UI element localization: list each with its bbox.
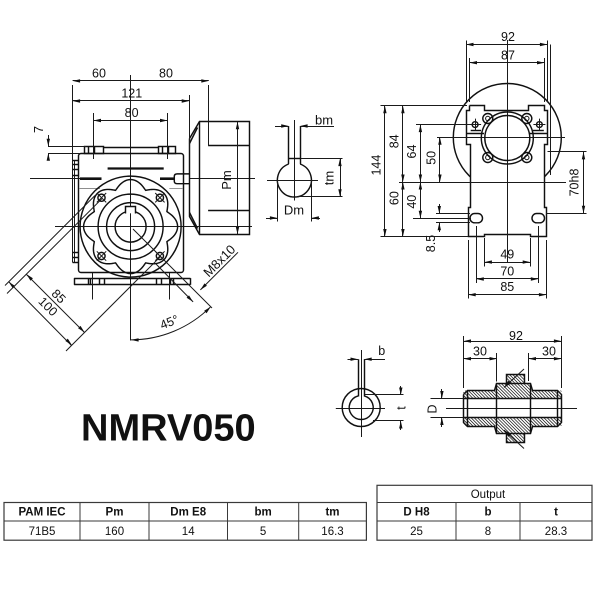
svg-text:Dm: Dm [284, 203, 304, 218]
svg-text:tm: tm [325, 507, 339, 519]
svg-text:80: 80 [125, 106, 139, 120]
svg-text:5: 5 [260, 526, 266, 538]
svg-text:8: 8 [485, 526, 491, 538]
svg-text:16.3: 16.3 [321, 526, 343, 538]
svg-text:28.3: 28.3 [545, 526, 567, 538]
svg-text:87: 87 [501, 48, 515, 62]
svg-text:60: 60 [92, 67, 106, 81]
svg-text:85: 85 [500, 280, 514, 294]
svg-text:Output: Output [471, 489, 506, 501]
svg-text:b: b [378, 344, 385, 358]
svg-text:80: 80 [159, 67, 173, 81]
svg-text:NMRV050: NMRV050 [81, 408, 256, 450]
svg-text:14: 14 [182, 526, 195, 538]
svg-text:40: 40 [405, 195, 419, 209]
svg-text:70h8: 70h8 [568, 169, 582, 197]
svg-text:71B5: 71B5 [29, 526, 56, 538]
svg-text:PAM IEC: PAM IEC [18, 507, 65, 519]
svg-text:92: 92 [501, 30, 515, 44]
svg-text:64: 64 [405, 145, 419, 159]
svg-text:49: 49 [500, 247, 514, 261]
svg-text:92: 92 [509, 329, 523, 343]
svg-text:bm: bm [254, 507, 271, 519]
svg-text:30: 30 [542, 344, 556, 358]
svg-text:30: 30 [473, 344, 487, 358]
svg-text:tm: tm [322, 171, 337, 185]
svg-text:144: 144 [370, 155, 384, 176]
svg-text:t: t [395, 406, 409, 410]
svg-text:70: 70 [500, 264, 514, 278]
svg-text:Pm: Pm [106, 507, 124, 519]
svg-text:84: 84 [388, 134, 402, 148]
svg-text:8.5: 8.5 [424, 235, 438, 252]
svg-text:bm: bm [315, 113, 333, 128]
svg-text:t: t [554, 507, 558, 519]
svg-text:7: 7 [32, 126, 46, 133]
svg-text:D: D [426, 404, 440, 413]
svg-text:121: 121 [121, 87, 142, 101]
svg-text:60: 60 [388, 191, 402, 205]
svg-text:Pm: Pm [219, 170, 234, 190]
svg-text:25: 25 [410, 526, 423, 538]
svg-text:Dm E8: Dm E8 [170, 507, 206, 519]
svg-text:D H8: D H8 [403, 507, 430, 519]
svg-text:160: 160 [105, 526, 124, 538]
svg-text:b: b [484, 507, 491, 519]
svg-text:50: 50 [425, 151, 439, 165]
